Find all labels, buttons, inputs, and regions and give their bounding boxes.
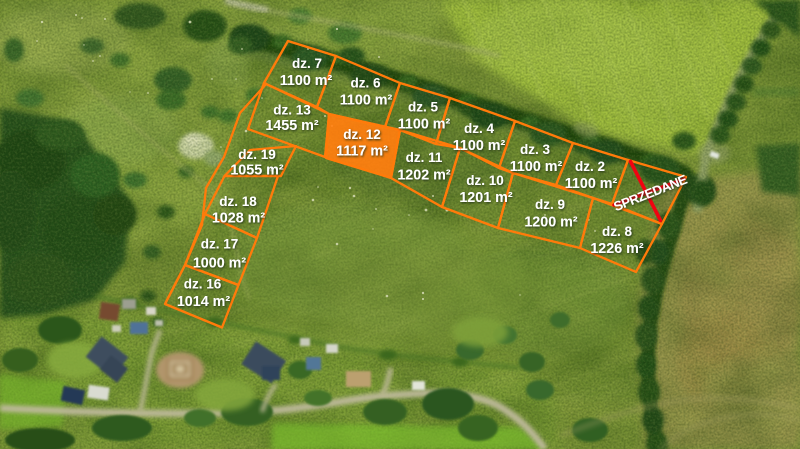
svg-text:1226 m²: 1226 m² [590, 241, 643, 257]
svg-text:1100 m²: 1100 m² [340, 93, 393, 109]
svg-text:1100 m²: 1100 m² [453, 138, 506, 154]
svg-text:1100 m²: 1100 m² [510, 159, 563, 175]
svg-text:1100 m²: 1100 m² [280, 73, 333, 89]
svg-text:dz. 17: dz. 17 [201, 237, 239, 252]
svg-text:1117 m²: 1117 m² [336, 144, 388, 160]
svg-text:dz. 8: dz. 8 [602, 224, 632, 239]
svg-text:1100 m²: 1100 m² [565, 176, 618, 192]
svg-text:dz. 19: dz. 19 [238, 147, 276, 162]
svg-text:dz. 10: dz. 10 [466, 173, 504, 188]
svg-text:dz. 6: dz. 6 [350, 76, 380, 91]
svg-text:dz. 12: dz. 12 [343, 127, 381, 142]
svg-text:dz. 11: dz. 11 [406, 150, 443, 165]
svg-text:dz. 5: dz. 5 [408, 100, 438, 115]
svg-text:1028 m²: 1028 m² [212, 211, 265, 227]
svg-text:1455 m²: 1455 m² [265, 118, 318, 134]
svg-text:1000 m²: 1000 m² [193, 256, 246, 272]
svg-text:dz. 3: dz. 3 [520, 142, 550, 157]
svg-text:1055 m²: 1055 m² [230, 163, 283, 179]
svg-text:1200 m²: 1200 m² [524, 215, 577, 231]
svg-text:dz. 18: dz. 18 [219, 194, 257, 209]
svg-text:dz. 4: dz. 4 [464, 121, 494, 136]
svg-text:dz. 7: dz. 7 [292, 56, 322, 71]
svg-text:1100 m²: 1100 m² [398, 117, 451, 133]
svg-text:1014 m²: 1014 m² [177, 294, 230, 310]
svg-text:dz. 16: dz. 16 [184, 277, 222, 292]
svg-text:dz. 13: dz. 13 [273, 103, 311, 118]
svg-text:1202 m²: 1202 m² [397, 168, 450, 184]
svg-text:dz. 9: dz. 9 [535, 197, 565, 212]
svg-text:1201 m²: 1201 m² [459, 190, 512, 206]
svg-text:dz. 2: dz. 2 [575, 159, 605, 174]
